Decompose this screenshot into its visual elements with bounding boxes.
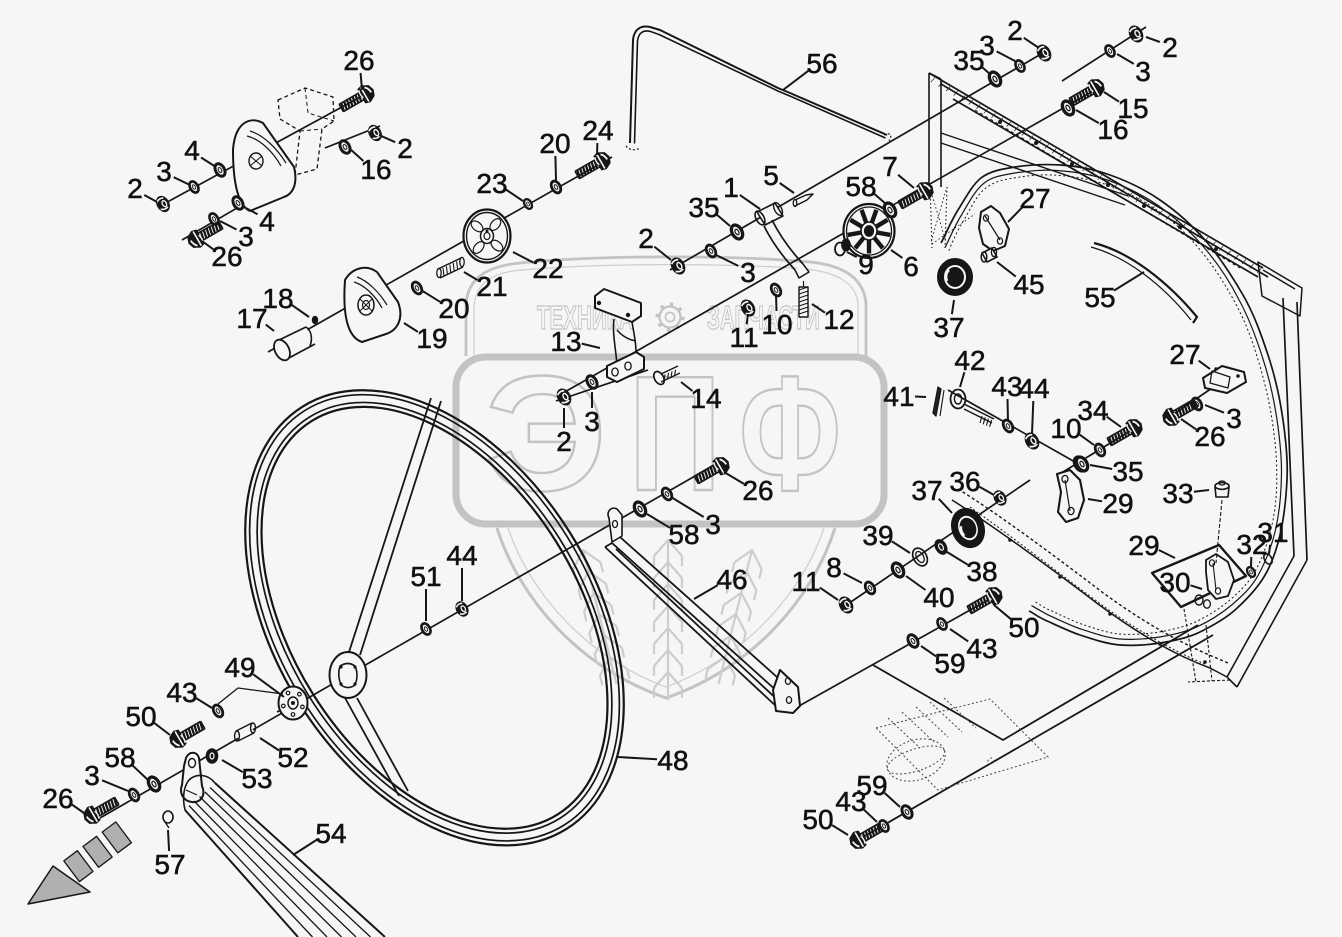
svg-text:40: 40 — [923, 582, 954, 613]
svg-text:3: 3 — [156, 156, 172, 187]
svg-text:9: 9 — [858, 249, 874, 280]
svg-text:3: 3 — [705, 509, 721, 540]
svg-text:43: 43 — [835, 786, 866, 817]
svg-text:58: 58 — [668, 519, 699, 550]
svg-text:16: 16 — [1097, 114, 1128, 145]
svg-text:2: 2 — [127, 173, 143, 204]
svg-text:42: 42 — [954, 345, 985, 376]
svg-text:2: 2 — [638, 223, 654, 254]
svg-text:11: 11 — [729, 322, 758, 353]
svg-text:14: 14 — [690, 383, 721, 414]
svg-text:2: 2 — [397, 133, 413, 164]
svg-text:50: 50 — [802, 804, 833, 835]
svg-text:27: 27 — [1019, 183, 1050, 214]
svg-text:2: 2 — [1007, 15, 1023, 46]
svg-text:39: 39 — [862, 520, 893, 551]
svg-text:50: 50 — [1008, 612, 1039, 643]
svg-text:50: 50 — [125, 701, 156, 732]
svg-text:17: 17 — [236, 303, 267, 334]
svg-text:3: 3 — [1135, 56, 1151, 87]
svg-text:6: 6 — [903, 251, 919, 282]
svg-text:30: 30 — [1159, 567, 1190, 598]
svg-text:26: 26 — [343, 45, 374, 76]
svg-text:49: 49 — [224, 652, 255, 683]
svg-text:2: 2 — [556, 426, 572, 457]
svg-text:20: 20 — [539, 128, 570, 159]
svg-text:3: 3 — [979, 30, 995, 61]
svg-text:44: 44 — [1018, 373, 1049, 404]
svg-text:35: 35 — [688, 192, 719, 223]
svg-text:2: 2 — [1162, 32, 1178, 63]
svg-text:27: 27 — [1169, 339, 1200, 370]
svg-text:26: 26 — [42, 783, 73, 814]
svg-text:34: 34 — [1077, 395, 1108, 426]
svg-text:4: 4 — [184, 135, 200, 166]
svg-text:3: 3 — [584, 406, 600, 437]
svg-text:55: 55 — [1084, 282, 1115, 313]
svg-text:43: 43 — [166, 677, 197, 708]
svg-text:46: 46 — [716, 564, 747, 595]
svg-text:12: 12 — [823, 304, 854, 335]
svg-text:53: 53 — [241, 763, 272, 794]
svg-text:16: 16 — [360, 154, 391, 185]
svg-text:23: 23 — [476, 168, 507, 199]
svg-text:59: 59 — [934, 648, 965, 679]
svg-text:1: 1 — [723, 172, 739, 203]
svg-text:36: 36 — [949, 466, 980, 497]
svg-text:38: 38 — [966, 556, 997, 587]
svg-text:43: 43 — [966, 633, 997, 664]
svg-text:13: 13 — [550, 326, 581, 357]
svg-text:21: 21 — [476, 271, 507, 302]
svg-text:20: 20 — [438, 293, 469, 324]
svg-text:11: 11 — [791, 566, 820, 597]
svg-text:45: 45 — [1013, 269, 1044, 300]
svg-text:48: 48 — [657, 745, 688, 776]
svg-text:58: 58 — [104, 742, 135, 773]
svg-text:24: 24 — [582, 115, 613, 146]
svg-text:8: 8 — [826, 552, 842, 583]
svg-text:19: 19 — [416, 323, 447, 354]
svg-text:3: 3 — [84, 760, 100, 791]
svg-text:29: 29 — [1128, 530, 1159, 561]
svg-text:31: 31 — [1257, 517, 1288, 548]
svg-text:29: 29 — [1102, 488, 1133, 519]
svg-text:26: 26 — [211, 241, 242, 272]
svg-text:3: 3 — [740, 257, 756, 288]
svg-text:26: 26 — [1194, 421, 1225, 452]
svg-text:22: 22 — [532, 253, 563, 284]
svg-text:5: 5 — [763, 160, 779, 191]
svg-text:10: 10 — [1050, 413, 1081, 444]
svg-text:41: 41 — [883, 381, 914, 412]
svg-text:35: 35 — [1112, 456, 1143, 487]
svg-text:7: 7 — [882, 151, 898, 182]
svg-text:52: 52 — [277, 742, 308, 773]
svg-text:26: 26 — [742, 475, 773, 506]
svg-text:51: 51 — [410, 561, 441, 592]
svg-text:10: 10 — [761, 309, 792, 340]
svg-text:57: 57 — [154, 849, 185, 880]
svg-text:37: 37 — [933, 312, 964, 343]
svg-text:56: 56 — [806, 48, 837, 79]
svg-text:37: 37 — [911, 475, 942, 506]
svg-text:33: 33 — [1162, 478, 1193, 509]
svg-text:58: 58 — [845, 171, 876, 202]
svg-text:54: 54 — [315, 818, 346, 849]
svg-text:4: 4 — [259, 206, 275, 237]
svg-text:44: 44 — [446, 540, 477, 571]
svg-text:3: 3 — [1226, 403, 1242, 434]
